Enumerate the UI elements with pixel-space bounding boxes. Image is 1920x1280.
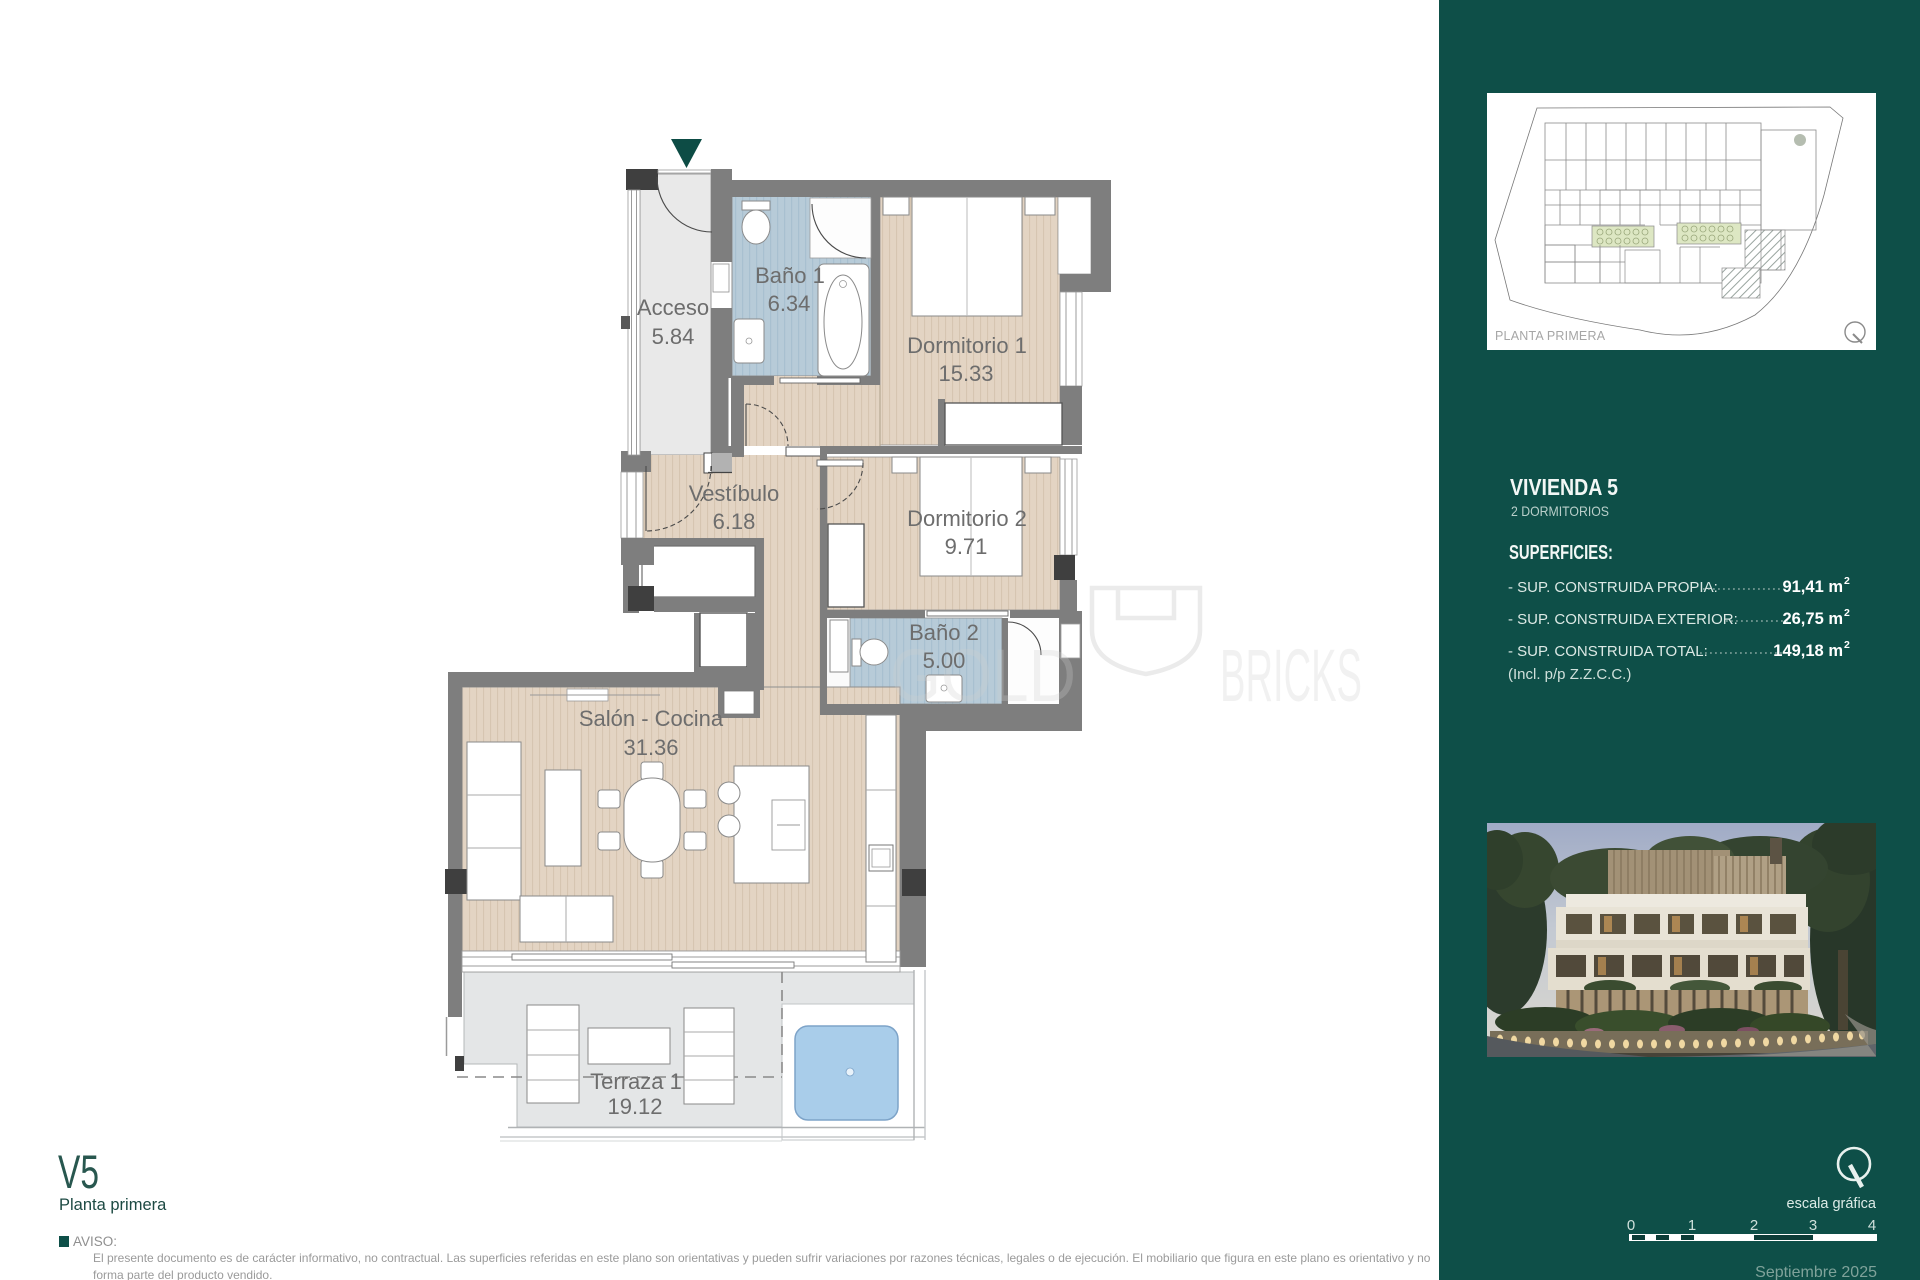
svg-text:4: 4 — [1868, 1217, 1876, 1234]
svg-text:- SUP. CONSTRUIDA PROPIA:: - SUP. CONSTRUIDA PROPIA: — [1508, 579, 1718, 596]
svg-text:Septiembre 2025: Septiembre 2025 — [1755, 1264, 1877, 1280]
svg-text:5.00: 5.00 — [923, 648, 966, 673]
svg-text:149,18 m: 149,18 m — [1773, 642, 1843, 660]
svg-text:forma parte del producto vendi: forma parte del producto vendido. — [93, 1268, 272, 1280]
svg-text:15.33: 15.33 — [938, 361, 993, 386]
svg-text:Acceso: Acceso — [637, 295, 709, 320]
svg-text:Planta primera: Planta primera — [59, 1196, 167, 1214]
svg-text:PLANTA PRIMERA: PLANTA PRIMERA — [1495, 329, 1606, 343]
svg-text:6.34: 6.34 — [768, 291, 811, 316]
svg-text:V5: V5 — [58, 1145, 99, 1198]
svg-text:Salón - Cocina: Salón - Cocina — [579, 706, 724, 731]
svg-text:GOLD: GOLD — [890, 634, 1076, 717]
svg-text:Dormitorio 2: Dormitorio 2 — [907, 506, 1027, 531]
svg-text:SUPERFICIES:: SUPERFICIES: — [1509, 542, 1613, 564]
svg-text:9.71: 9.71 — [945, 534, 988, 559]
svg-text:Vestíbulo: Vestíbulo — [689, 481, 780, 506]
svg-text:AVISO:: AVISO: — [73, 1234, 117, 1249]
svg-text:BRICKS: BRICKS — [1220, 634, 1362, 717]
svg-text:2: 2 — [1844, 607, 1850, 619]
svg-text:- SUP. CONSTRUIDA TOTAL:: - SUP. CONSTRUIDA TOTAL: — [1508, 643, 1708, 660]
svg-text:2 DORMITORIOS: 2 DORMITORIOS — [1511, 503, 1609, 519]
svg-text:2: 2 — [1750, 1217, 1758, 1234]
svg-text:1: 1 — [1688, 1217, 1696, 1234]
svg-text:El presente documento es de ca: El presente documento es de carácter inf… — [93, 1251, 1431, 1265]
svg-text:Dormitorio 1: Dormitorio 1 — [907, 333, 1027, 358]
svg-text:5.84: 5.84 — [652, 324, 695, 349]
svg-text:(Incl. p/p Z.Z.C.C.): (Incl. p/p Z.Z.C.C.) — [1508, 666, 1631, 683]
svg-text:26,75 m: 26,75 m — [1782, 610, 1843, 628]
svg-text:2: 2 — [1844, 639, 1850, 651]
svg-text:19.12: 19.12 — [607, 1094, 662, 1119]
svg-text:- SUP. CONSTRUIDA EXTERIOR:: - SUP. CONSTRUIDA EXTERIOR: — [1508, 611, 1738, 628]
svg-text:2: 2 — [1844, 575, 1850, 587]
svg-text:31.36: 31.36 — [623, 735, 678, 760]
svg-text:VIVIENDA 5: VIVIENDA 5 — [1510, 474, 1618, 500]
svg-text:Baño 1: Baño 1 — [755, 263, 825, 288]
svg-text:0: 0 — [1627, 1217, 1635, 1234]
svg-text:Baño 2: Baño 2 — [909, 620, 979, 645]
svg-text:Terraza 1: Terraza 1 — [590, 1069, 682, 1094]
svg-text:3: 3 — [1809, 1217, 1817, 1234]
svg-text:escala gráfica: escala gráfica — [1787, 1196, 1877, 1212]
svg-text:6.18: 6.18 — [713, 509, 756, 534]
svg-text:91,41 m: 91,41 m — [1782, 578, 1843, 596]
